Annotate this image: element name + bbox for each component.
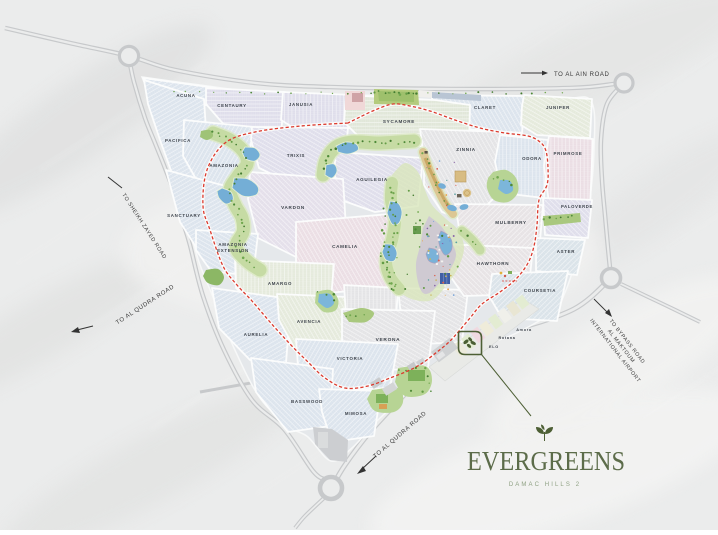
svg-text:VICTORIA: VICTORIA bbox=[337, 356, 364, 361]
svg-text:ODORA: ODORA bbox=[522, 156, 542, 161]
svg-text:AVENCIA: AVENCIA bbox=[297, 319, 321, 324]
svg-text:CENTAURY: CENTAURY bbox=[217, 103, 247, 108]
svg-text:SYCAMORE: SYCAMORE bbox=[383, 119, 415, 124]
svg-text:MIMOSA: MIMOSA bbox=[345, 411, 367, 416]
svg-text:TO AL AIN ROAD: TO AL AIN ROAD bbox=[554, 72, 609, 78]
svg-text:MULBERRY: MULBERRY bbox=[495, 220, 526, 225]
svg-text:Rotana: Rotana bbox=[498, 336, 515, 340]
svg-text:PRIMROSE: PRIMROSE bbox=[553, 151, 582, 156]
svg-text:CLARET: CLARET bbox=[474, 105, 496, 110]
svg-text:AGUILEGIA: AGUILEGIA bbox=[356, 177, 388, 182]
svg-text:Amora: Amora bbox=[516, 328, 532, 332]
svg-text:HAWTHORN: HAWTHORN bbox=[477, 261, 510, 266]
svg-text:JUNIPER: JUNIPER bbox=[546, 105, 570, 110]
svg-text:VERONA: VERONA bbox=[376, 337, 401, 343]
svg-text:CAMELIA: CAMELIA bbox=[332, 244, 358, 249]
svg-text:AMAZONIA: AMAZONIA bbox=[218, 242, 247, 247]
svg-text:VARDON: VARDON bbox=[281, 205, 305, 210]
svg-text:PALOVERDE: PALOVERDE bbox=[561, 204, 593, 209]
svg-text:DAMAC HILLS 2: DAMAC HILLS 2 bbox=[509, 482, 581, 488]
svg-text:AMARGO: AMARGO bbox=[268, 281, 292, 286]
svg-text:SANCTUARY: SANCTUARY bbox=[167, 213, 201, 218]
svg-text:PACIFICA: PACIFICA bbox=[165, 138, 191, 143]
svg-text:ZINNIA: ZINNIA bbox=[456, 147, 476, 152]
svg-text:EVERGREENS: EVERGREENS bbox=[467, 446, 625, 476]
svg-text:COURSETIA: COURSETIA bbox=[524, 288, 556, 293]
svg-text:AURELIA: AURELIA bbox=[244, 332, 269, 337]
svg-text:ELO: ELO bbox=[489, 345, 499, 349]
svg-text:JANUSIA: JANUSIA bbox=[289, 102, 313, 107]
svg-text:ASTER: ASTER bbox=[557, 249, 576, 254]
svg-text:ACUNA: ACUNA bbox=[176, 93, 195, 98]
svg-text:BASSWOOD: BASSWOOD bbox=[291, 399, 323, 404]
svg-text:AMAZONIA: AMAZONIA bbox=[209, 163, 238, 168]
svg-text:TRIXIS: TRIXIS bbox=[287, 153, 305, 158]
svg-text:EXTENSION: EXTENSION bbox=[217, 248, 249, 253]
